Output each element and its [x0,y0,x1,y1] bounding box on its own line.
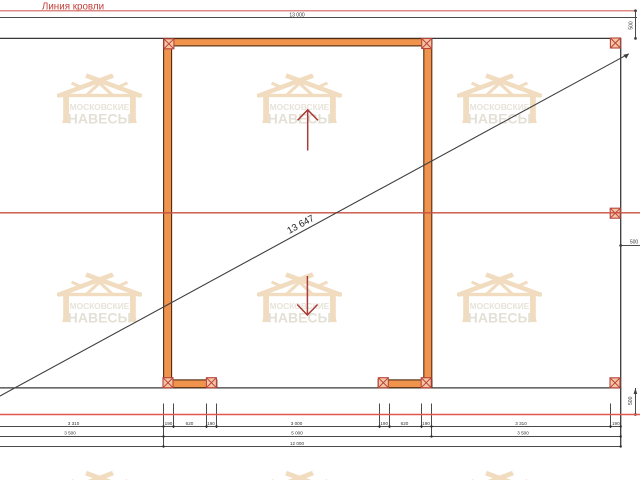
svg-text:3 500: 3 500 [517,431,529,436]
svg-text:620: 620 [401,421,409,426]
svg-text:190: 190 [165,421,173,426]
svg-text:500: 500 [628,21,634,30]
svg-text:500: 500 [628,396,634,405]
svg-text:3 500: 3 500 [64,431,76,436]
svg-text:190: 190 [422,421,430,426]
svg-text:13 647: 13 647 [285,213,316,237]
svg-text:620: 620 [186,421,194,426]
svg-text:190: 190 [207,421,215,426]
svg-text:3 310: 3 310 [68,421,80,426]
svg-text:3 310: 3 310 [515,421,527,426]
svg-text:5 000: 5 000 [291,431,303,436]
svg-text:12 000: 12 000 [290,441,304,446]
svg-text:190: 190 [612,421,620,426]
svg-text:3 000: 3 000 [291,421,303,426]
svg-text:190: 190 [380,421,388,426]
svg-text:500: 500 [630,240,639,246]
